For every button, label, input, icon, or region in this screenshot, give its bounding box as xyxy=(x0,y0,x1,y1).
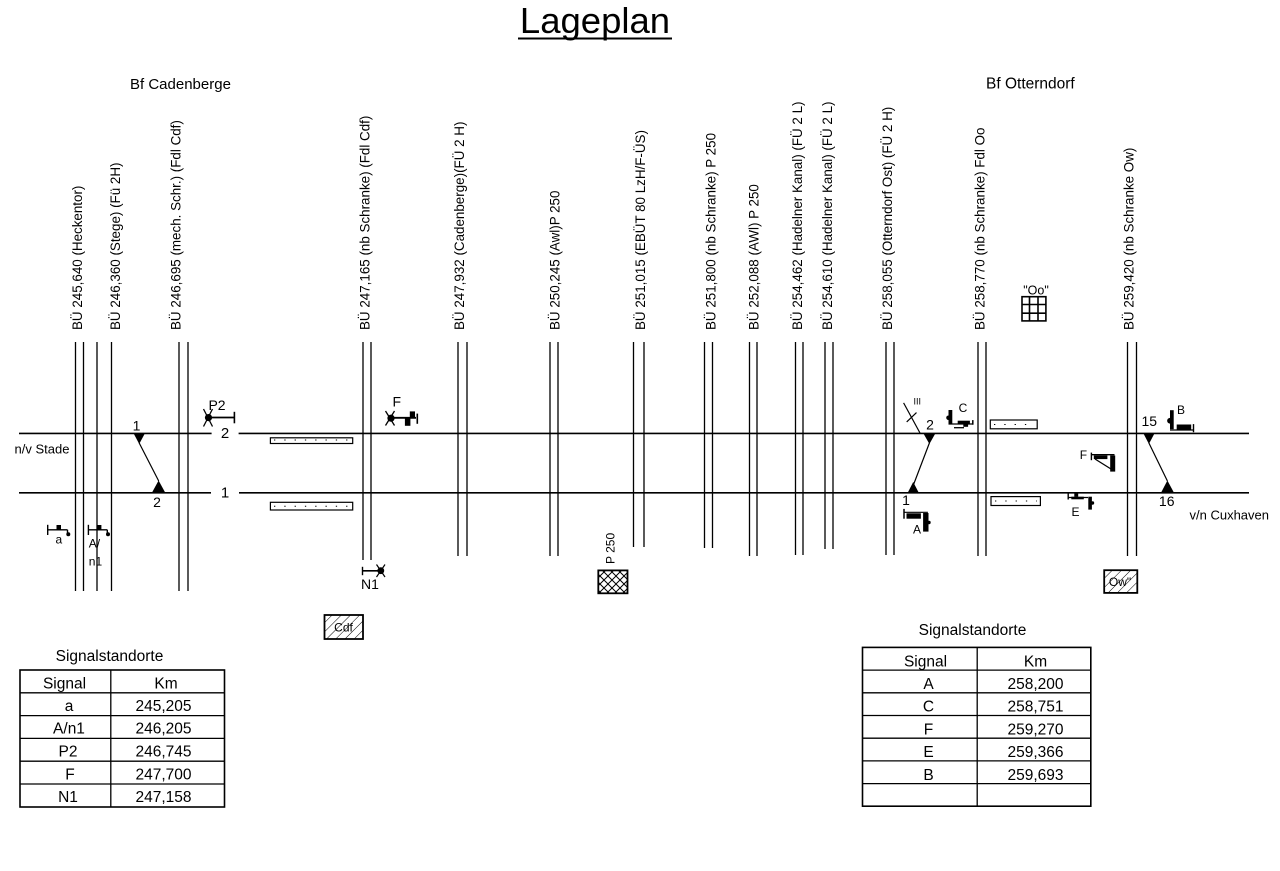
svg-text:Signal: Signal xyxy=(904,654,947,671)
svg-text:15: 15 xyxy=(1142,413,1158,429)
svg-text:N1: N1 xyxy=(58,789,78,806)
svg-text:259,693: 259,693 xyxy=(1007,767,1063,784)
svg-text:C: C xyxy=(959,401,968,415)
svg-text:Signal: Signal xyxy=(43,676,86,693)
svg-text:247,700: 247,700 xyxy=(135,766,191,783)
svg-text:BÜ 258,055 (Otterndorf Ost) (F: BÜ 258,055 (Otterndorf Ost) (FÜ 2 H) xyxy=(880,107,895,330)
svg-text:1: 1 xyxy=(902,492,910,508)
svg-text:259,366: 259,366 xyxy=(1007,744,1063,761)
svg-text:BÜ 250,245 (Awl)P 250: BÜ 250,245 (Awl)P 250 xyxy=(548,191,563,330)
svg-text:BÜ 259,420 (nb Schranke Ow): BÜ 259,420 (nb Schranke Ow) xyxy=(1122,148,1137,330)
svg-text:1: 1 xyxy=(221,485,229,502)
svg-text:C: C xyxy=(923,699,934,716)
svg-text:Lageplan: Lageplan xyxy=(520,0,670,41)
svg-text:BÜ 254,610 (Hadelner Kanal) (F: BÜ 254,610 (Hadelner Kanal) (FÜ 2 L) xyxy=(820,102,835,331)
svg-text:BÜ 254,462 (Hadelner Kanal) (F: BÜ 254,462 (Hadelner Kanal) (FÜ 2 L) xyxy=(790,102,805,331)
svg-text:III: III xyxy=(914,397,922,407)
svg-text:Bf Otterndorf: Bf Otterndorf xyxy=(986,76,1075,93)
svg-text:BÜ 246,695 (mech. Schr.) (Fdl: BÜ 246,695 (mech. Schr.) (Fdl Cdf) xyxy=(169,120,184,330)
svg-text:BÜ 251,800 (nb Schranke) P 250: BÜ 251,800 (nb Schranke) P 250 xyxy=(704,133,719,330)
svg-text:Cdf: Cdf xyxy=(334,621,353,635)
svg-text:Km: Km xyxy=(1024,654,1047,671)
svg-text:A: A xyxy=(913,523,921,537)
svg-text:BÜ 246,360 (Stege) (Fü 2H): BÜ 246,360 (Stege) (Fü 2H) xyxy=(108,163,123,330)
svg-text:P2: P2 xyxy=(59,743,78,760)
svg-text:Signalstandorte: Signalstandorte xyxy=(56,648,164,665)
svg-text:F: F xyxy=(393,394,402,410)
svg-text:a: a xyxy=(56,533,63,547)
svg-text:F: F xyxy=(924,721,933,738)
svg-text:"Oo": "Oo" xyxy=(1023,284,1049,298)
svg-text:259,270: 259,270 xyxy=(1007,721,1063,738)
svg-text:a: a xyxy=(65,698,74,715)
svg-text:F: F xyxy=(1080,448,1087,462)
svg-text:BÜ 251,015 (EBÜT 80 LzH/F-ÜS): BÜ 251,015 (EBÜT 80 LzH/F-ÜS) xyxy=(633,130,648,330)
svg-text:246,205: 246,205 xyxy=(135,720,191,737)
svg-text:BÜ 247,165 (nb Schranke) (Fdl: BÜ 247,165 (nb Schranke) (Fdl Cdf) xyxy=(358,116,373,330)
svg-text:B: B xyxy=(923,767,933,784)
svg-text:BÜ 252,088 (AWl) P 250: BÜ 252,088 (AWl) P 250 xyxy=(747,184,762,330)
svg-text:2: 2 xyxy=(926,417,934,433)
svg-text:BÜ 247,932 (Cadenberge)(FÜ 2: BÜ 247,932 (Cadenberge)(FÜ 2 H) xyxy=(452,122,467,330)
svg-text:245,205: 245,205 xyxy=(135,698,191,715)
svg-text:v/n Cuxhaven: v/n Cuxhaven xyxy=(1190,508,1270,523)
svg-text:2: 2 xyxy=(221,425,229,442)
svg-text:E: E xyxy=(1071,505,1079,519)
svg-text:247,158: 247,158 xyxy=(135,789,191,806)
svg-text:n/v Stade: n/v Stade xyxy=(15,442,70,457)
svg-text:2: 2 xyxy=(153,494,161,510)
svg-text:BÜ 258,770 (nb Schranke) Fdl O: BÜ 258,770 (nb Schranke) Fdl Oo xyxy=(973,128,988,330)
svg-text:A/: A/ xyxy=(89,537,101,551)
svg-text:1: 1 xyxy=(133,418,141,434)
svg-text:B: B xyxy=(1177,403,1185,417)
svg-text:A/n1: A/n1 xyxy=(53,720,85,737)
svg-text:N1: N1 xyxy=(361,576,379,592)
svg-text:Ow": Ow" xyxy=(1109,575,1131,589)
svg-text:n1: n1 xyxy=(89,555,103,569)
svg-text:A: A xyxy=(923,676,934,693)
svg-text:BÜ 245,640 (Heckentor): BÜ 245,640 (Heckentor) xyxy=(70,186,85,330)
svg-text:Signalstandorte: Signalstandorte xyxy=(919,622,1027,639)
svg-text:16: 16 xyxy=(1159,493,1175,509)
svg-text:246,745: 246,745 xyxy=(135,743,191,760)
svg-text:Bf Cadenberge: Bf Cadenberge xyxy=(130,76,231,93)
svg-text:258,200: 258,200 xyxy=(1007,676,1063,693)
svg-text:258,751: 258,751 xyxy=(1007,699,1063,716)
svg-text:E: E xyxy=(923,744,933,761)
svg-text:F: F xyxy=(65,766,74,783)
svg-text:P 250: P 250 xyxy=(604,533,618,564)
svg-text:Km: Km xyxy=(154,676,177,693)
